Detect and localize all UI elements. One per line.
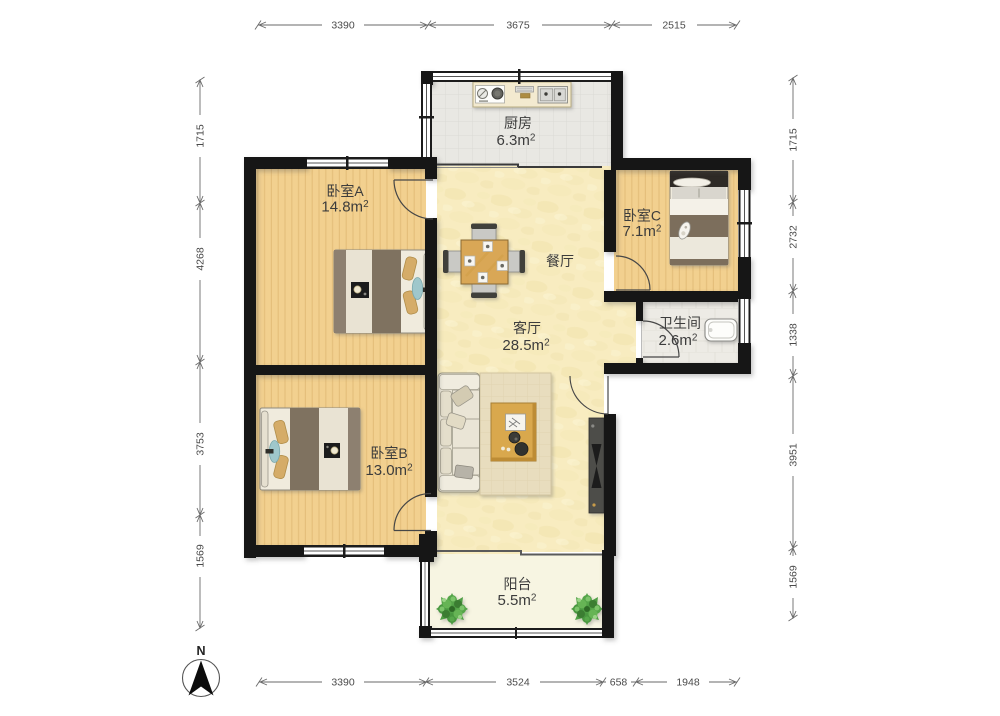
svg-text:阳台: 阳台 (504, 576, 532, 592)
svg-text:N: N (196, 644, 205, 658)
svg-text:4268: 4268 (195, 247, 207, 271)
svg-text:658: 658 (610, 677, 628, 689)
svg-text:2515: 2515 (662, 20, 686, 32)
svg-text:28.5m2: 28.5m2 (502, 337, 550, 354)
svg-text:卧室B: 卧室B (370, 445, 407, 461)
svg-text:3390: 3390 (331, 677, 355, 689)
svg-text:1569: 1569 (195, 544, 207, 568)
svg-text:3675: 3675 (506, 20, 530, 32)
svg-text:13.0m2: 13.0m2 (365, 462, 413, 479)
svg-text:3753: 3753 (195, 432, 207, 456)
svg-text:1569: 1569 (788, 565, 800, 589)
svg-text:14.8m2: 14.8m2 (321, 199, 369, 216)
svg-text:2732: 2732 (788, 225, 800, 249)
svg-text:餐厅: 餐厅 (546, 253, 574, 269)
svg-text:1715: 1715 (788, 128, 800, 152)
svg-text:1338: 1338 (788, 323, 800, 347)
svg-text:卧室C: 卧室C (623, 208, 661, 224)
svg-text:3951: 3951 (788, 443, 800, 467)
svg-text:3524: 3524 (506, 677, 530, 689)
svg-text:3390: 3390 (331, 20, 355, 32)
svg-text:厨房: 厨房 (504, 115, 532, 131)
svg-text:1948: 1948 (676, 677, 700, 689)
svg-text:卧室A: 卧室A (326, 183, 364, 199)
svg-text:客厅: 客厅 (513, 320, 541, 336)
svg-text:卫生间: 卫生间 (659, 315, 701, 331)
svg-text:1715: 1715 (195, 124, 207, 148)
